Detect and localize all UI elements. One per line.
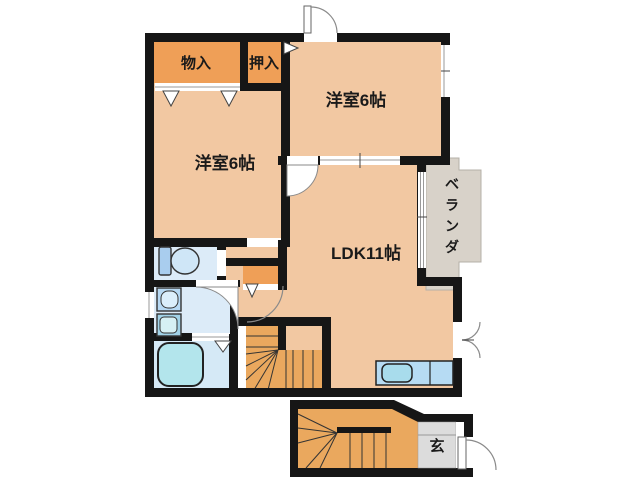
bathtub-icon [158, 343, 203, 386]
wall-top [145, 33, 450, 42]
oshiire-label: 押入 [249, 54, 279, 72]
stair-handrail [337, 427, 391, 433]
svg-text:ダ: ダ [445, 239, 459, 255]
entrance-label: 玄 [429, 437, 444, 455]
floor-plan-page: 物入 押入 洋室6帖 洋室6帖 LDK11帖 ベ ラ ン ダ 玄 [0, 0, 640, 480]
veranda-window [418, 172, 426, 268]
ground-floor-section [290, 400, 496, 477]
wall-bottom [145, 388, 462, 397]
wall-center-vertical [281, 33, 290, 247]
wall-stairs-right [322, 317, 331, 392]
hall-closet-floor [243, 265, 278, 284]
wall-closet-divider [240, 33, 248, 91]
washing-machine-drum-icon [161, 291, 178, 308]
vanity-basin-icon [160, 317, 177, 333]
wall-bedroom-bottom [145, 238, 247, 247]
ldk-label: LDK11帖 [331, 243, 401, 263]
front-door-leaf [458, 437, 466, 469]
ldk-door-gap [287, 156, 318, 165]
double-window-gap [453, 322, 462, 358]
svg-text:ラ: ラ [445, 197, 459, 213]
washroom-door-gap [196, 280, 238, 287]
svg-text:ン: ン [445, 218, 459, 234]
top-door-gap [304, 33, 337, 42]
toilet-tank-icon [159, 247, 171, 275]
floor-plan: 物入 押入 洋室6帖 洋室6帖 LDK11帖 ベ ラ ン ダ 玄 [0, 0, 640, 480]
wall-hallcloset-right [278, 240, 287, 290]
stairwell-notch [286, 326, 322, 350]
double-window-arc-bottom [462, 340, 480, 358]
bedroom-left-label: 洋室6帖 [195, 153, 255, 173]
toilet-bowl-icon [171, 248, 199, 274]
wall-oshiire-bottom [240, 83, 290, 91]
kitchen-sink-icon [382, 364, 412, 382]
wall-left [145, 33, 154, 397]
svg-text:ベ: ベ [445, 176, 459, 192]
wall-stairs-stub [278, 317, 286, 350]
toilet-door-gap [217, 250, 226, 276]
top-door-arc [311, 7, 337, 33]
wall-hallcloset-top [226, 258, 287, 266]
double-window-arc-top [462, 322, 480, 340]
bedroom-top-label: 洋室6帖 [326, 90, 386, 110]
top-door-leaf [304, 6, 311, 33]
storage-label: 物入 [181, 54, 211, 72]
